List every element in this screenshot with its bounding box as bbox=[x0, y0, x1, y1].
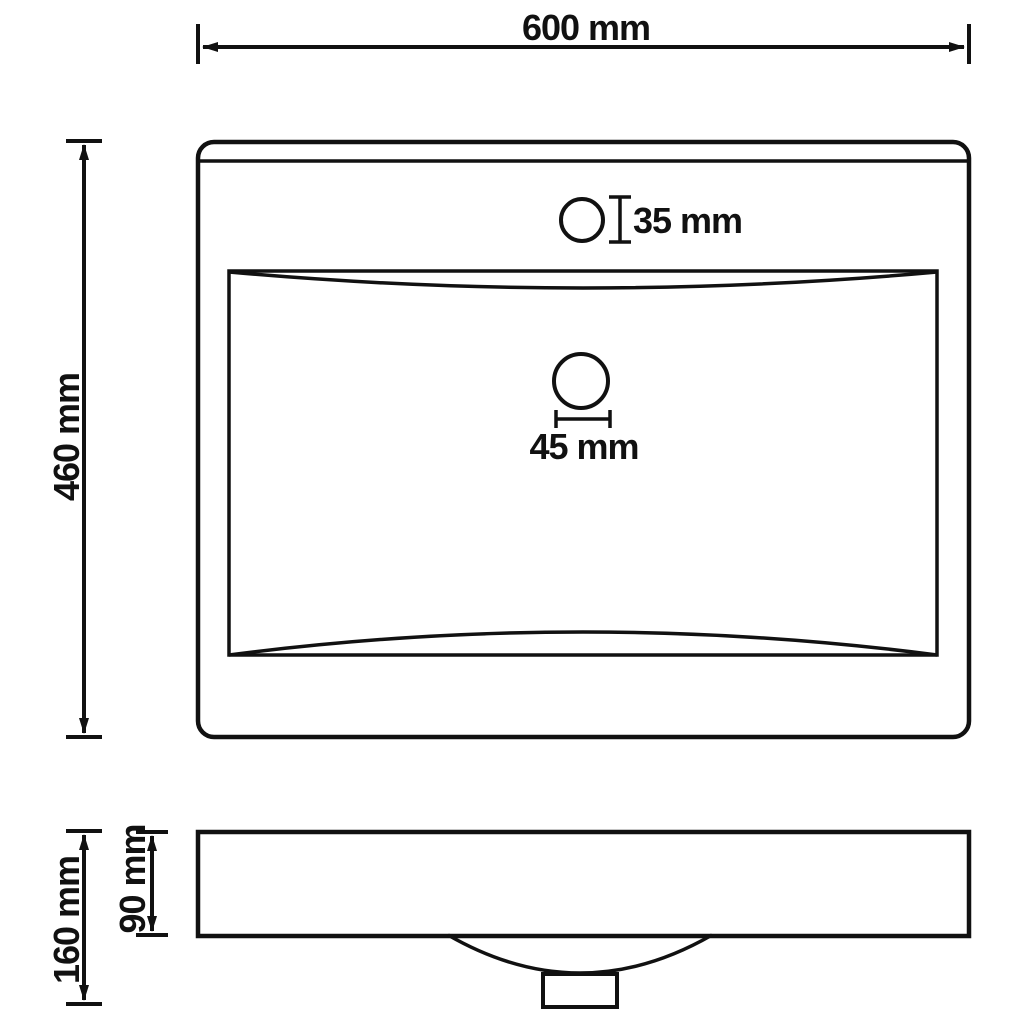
width-dimension: 600 mm bbox=[198, 7, 969, 64]
faucet-hole-circle bbox=[561, 199, 603, 241]
faucet-hole-group: 35 mm bbox=[561, 197, 742, 242]
drain-hole-circle bbox=[554, 354, 608, 408]
basin-technical-drawing: 600 mm 460 mm 35 mm bbox=[0, 0, 1024, 1024]
side-view-bowl-curve bbox=[448, 935, 712, 973]
basin-rim-bottom-curve bbox=[229, 632, 937, 655]
top-view: 35 mm 45 mm bbox=[198, 142, 969, 737]
rim-height-label: 90 mm bbox=[112, 824, 153, 933]
faucet-hole-label: 35 mm bbox=[633, 200, 742, 241]
drain-hole-group: 45 mm bbox=[529, 354, 638, 467]
side-view-outline bbox=[198, 832, 969, 936]
side-view bbox=[198, 832, 969, 1007]
side-view-drain-stub bbox=[543, 974, 617, 1007]
drain-hole-label: 45 mm bbox=[529, 426, 638, 467]
width-dimension-label: 600 mm bbox=[522, 7, 650, 48]
depth-dimension: 460 mm bbox=[46, 141, 102, 737]
rim-height-dimension: 90 mm bbox=[112, 824, 168, 935]
depth-dimension-label: 460 mm bbox=[46, 373, 87, 501]
height-dimension-label: 160 mm bbox=[46, 856, 87, 984]
basin-rim-top-curve bbox=[229, 272, 937, 288]
height-dimension: 160 mm bbox=[46, 831, 102, 1004]
drawing-svg: 600 mm 460 mm 35 mm bbox=[0, 0, 1024, 1024]
